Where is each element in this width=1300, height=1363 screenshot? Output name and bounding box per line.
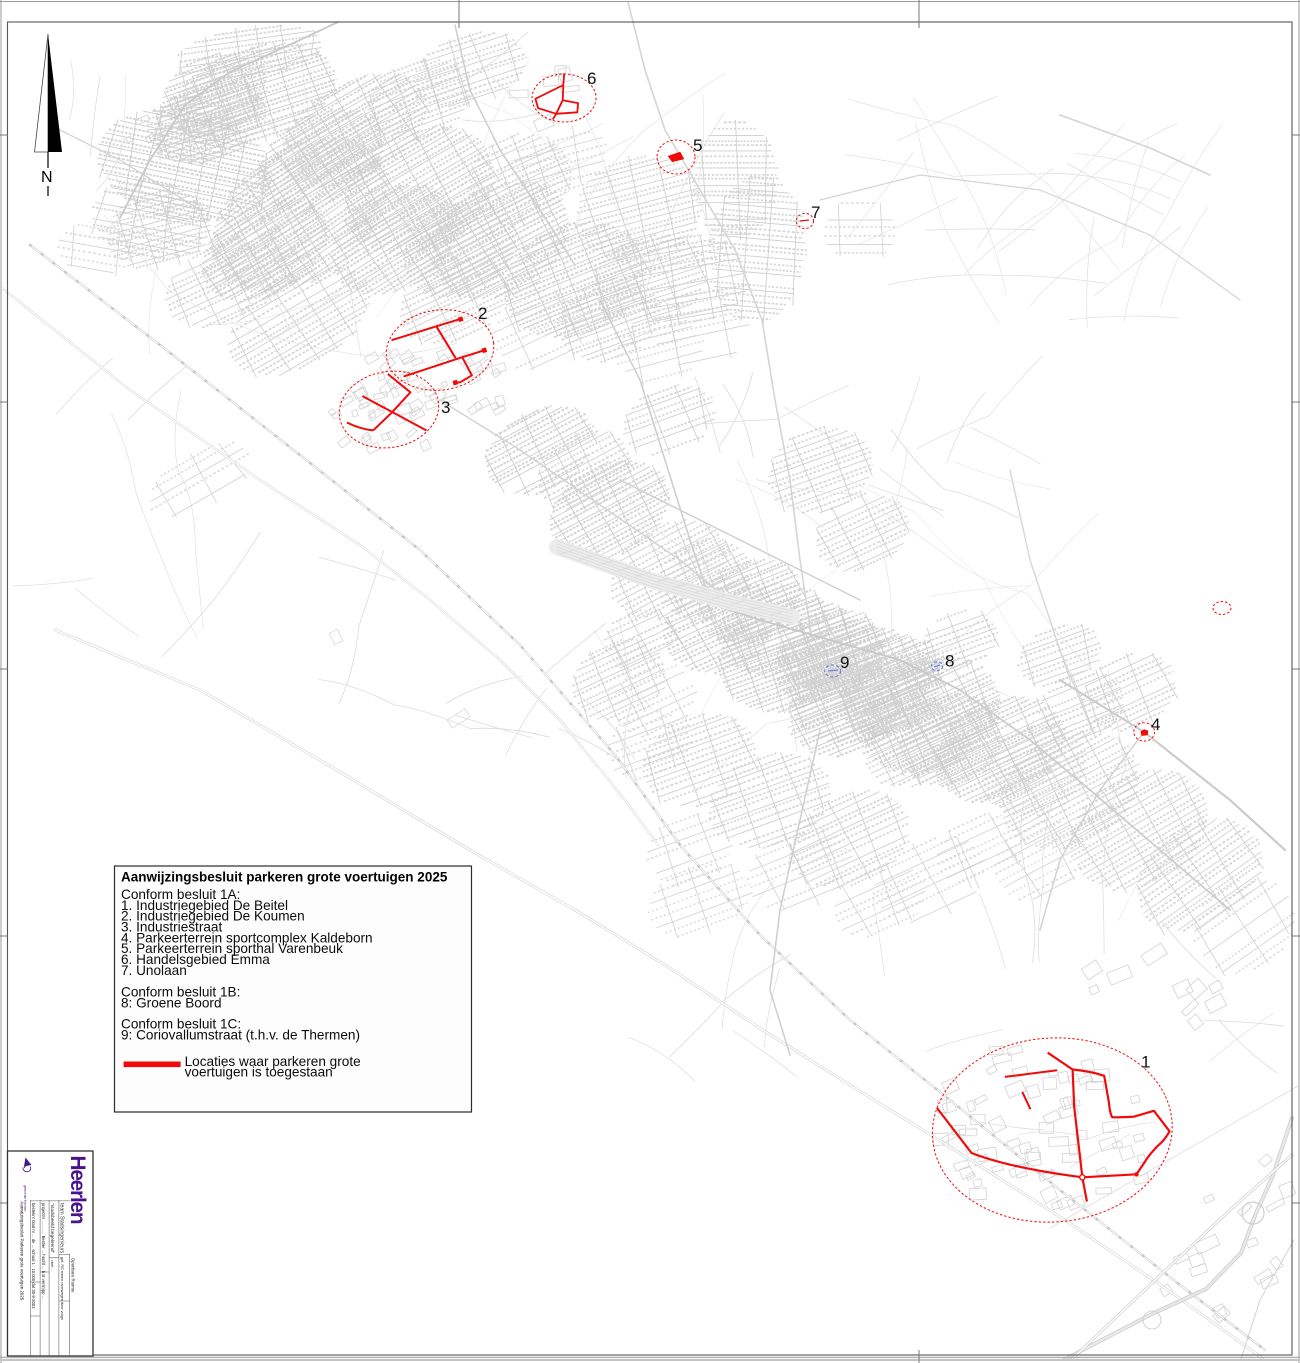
svg-text:4: 4: [1151, 715, 1160, 734]
svg-text:projectnr ............: projectnr ............ Bestier ... hoofd…: [41, 1203, 46, 1299]
svg-text:6: 6: [587, 69, 596, 88]
svg-text:7: 7: [811, 203, 820, 222]
svg-text:1: 1: [1141, 1053, 1150, 1072]
svg-text:9: Coriovallumstraat (t.h.v. d: 9: Coriovallumstraat (t.h.v. de Thermen): [121, 1028, 360, 1043]
svg-text:get. RS memo overwegen: get. RS memo overwegen door volgn: [60, 1257, 64, 1320]
svg-text:N: N: [41, 169, 53, 186]
svg-text:Aanwijzingsbesluit parkeren gr: Aanwijzingsbesluit parkeren grote voertu…: [121, 870, 448, 885]
svg-text:8: 8: [945, 652, 954, 671]
svg-text:“stadsbeeld begeleend”: “stadsbeeld begeleend”: [49, 1203, 55, 1254]
svg-text:2: 2: [478, 304, 487, 323]
svg-text:Openbare Ruimte: Openbare Ruimte: [70, 1258, 75, 1293]
svg-text:7. Unolaan: 7. Unolaan: [121, 963, 187, 978]
svg-text:9: 9: [840, 653, 849, 672]
svg-text:Heerlen: Heerlen: [66, 1156, 89, 1224]
svg-text:voertuigen is toegestaan: voertuigen is toegestaan: [185, 1065, 333, 1080]
svg-text:3: 3: [441, 398, 450, 417]
svg-text:chef ...: chef ...: [50, 1260, 54, 1271]
svg-text:8: Groene Boord: 8: Groene Boord: [121, 996, 222, 1011]
svg-text:besteknr blad: besteknr blad nr ... de ... schaal 1 : 1…: [31, 1203, 36, 1309]
svg-text:team Stadsingenieurs: team Stadsingenieurs: [59, 1203, 65, 1254]
svg-text:Aanwijzingsbesluit Parkeren gr: Aanwijzingsbesluit Parkeren grote voertu…: [20, 1201, 25, 1300]
svg-text:5: 5: [693, 136, 702, 155]
